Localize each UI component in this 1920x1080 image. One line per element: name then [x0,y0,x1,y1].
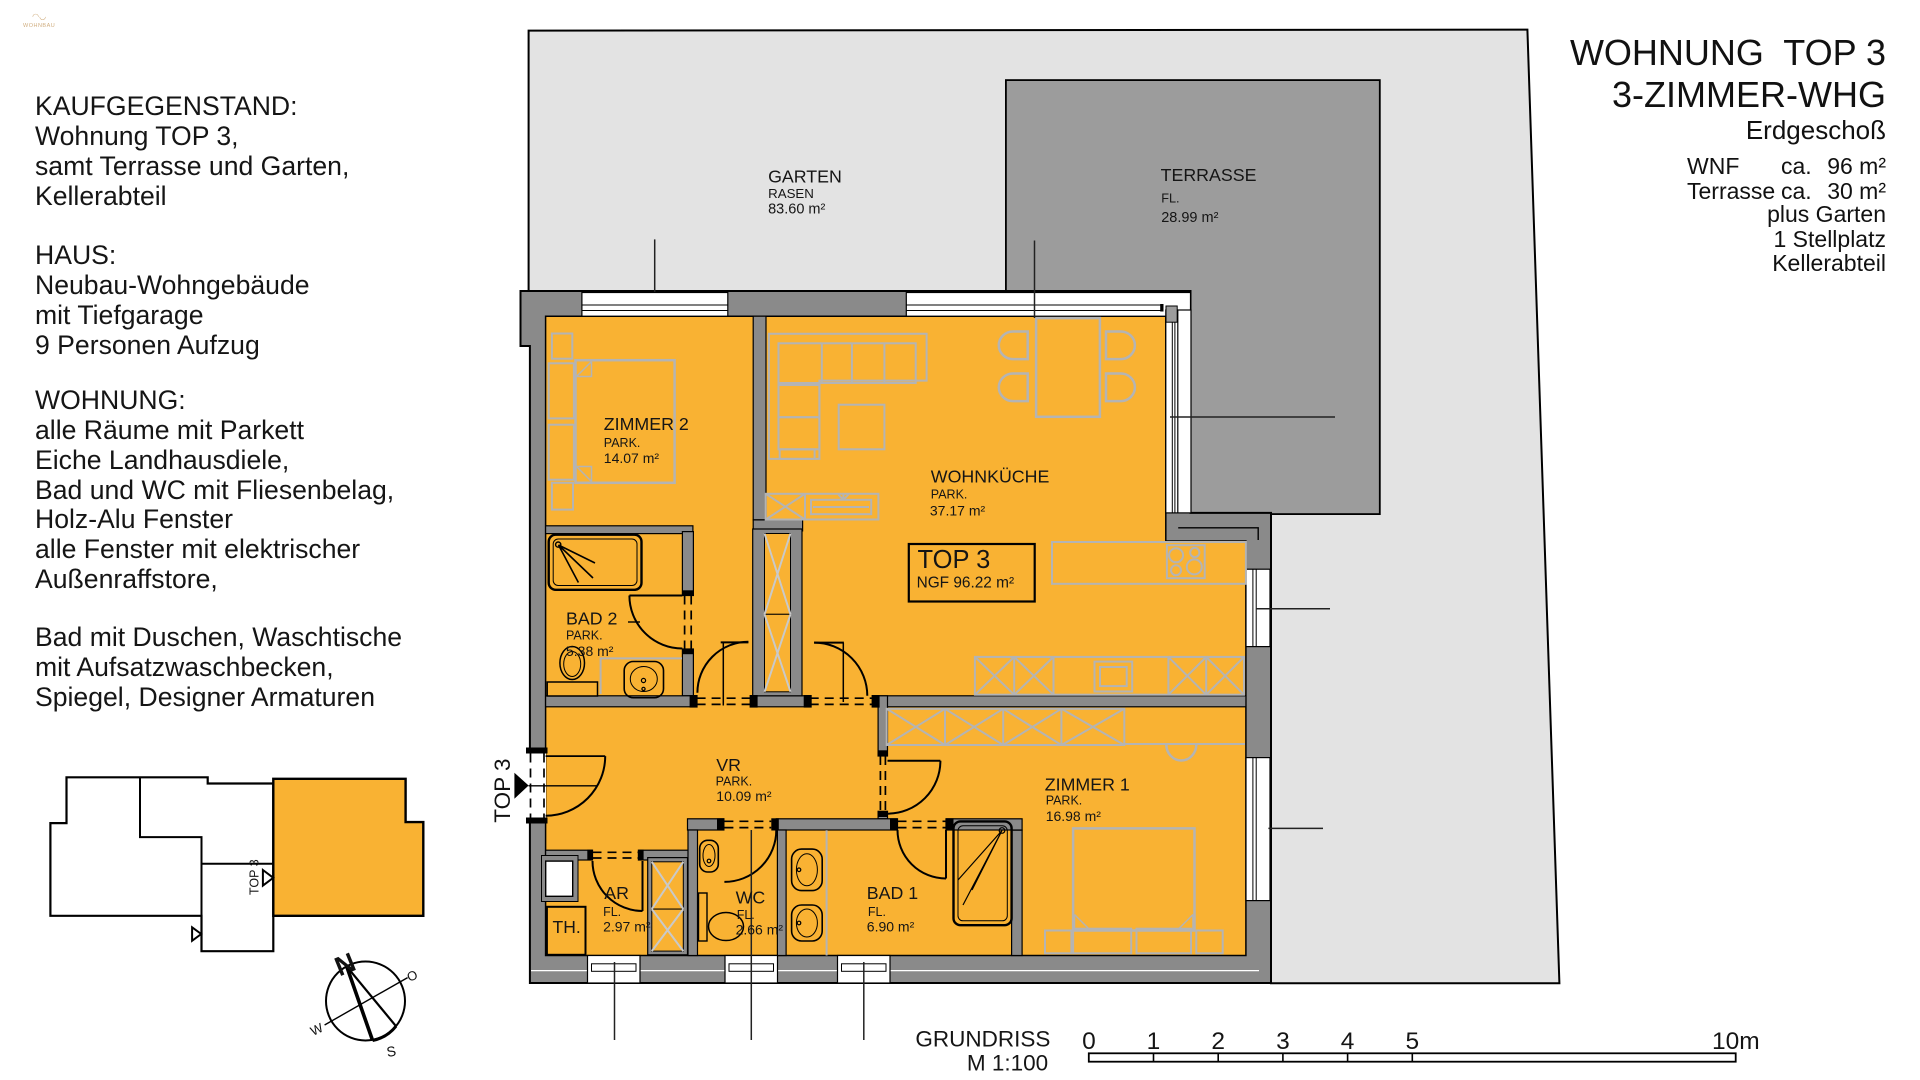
svg-text:GARTEN: GARTEN [768,167,842,187]
svg-text:WOHNKÜCHE: WOHNKÜCHE [931,467,1050,487]
svg-text:O: O [404,967,420,985]
svg-text:PARK.: PARK. [604,436,641,450]
svg-text:FL.: FL. [603,905,621,919]
svg-text:S: S [385,1043,397,1060]
svg-text:83.60 m²: 83.60 m² [768,201,825,217]
svg-text:TOP 3: TOP 3 [918,546,991,574]
svg-text:5: 5 [1405,1028,1419,1055]
svg-text:RASEN: RASEN [768,186,814,201]
svg-text:TOP 3: TOP 3 [490,758,515,822]
svg-text:6.90 m²: 6.90 m² [867,919,915,935]
svg-text:2: 2 [1211,1028,1225,1055]
svg-text:37.17 m²: 37.17 m² [930,503,986,519]
svg-text:3: 3 [1276,1028,1290,1055]
svg-text:FL.: FL. [868,905,886,919]
svg-text:4: 4 [1341,1028,1355,1055]
svg-text:14.07 m²: 14.07 m² [604,450,660,466]
svg-text:10.09 m²: 10.09 m² [716,788,772,804]
svg-text:5.38 m²: 5.38 m² [566,643,614,659]
svg-text:BAD 1: BAD 1 [867,883,919,903]
svg-text:0: 0 [1082,1028,1096,1055]
svg-text:W: W [308,1020,326,1039]
svg-text:PARK.: PARK. [716,774,753,788]
svg-text:PARK.: PARK. [931,488,968,502]
svg-text:TH.: TH. [553,917,581,937]
svg-text:ZIMMER 2: ZIMMER 2 [604,414,689,434]
svg-text:NGF 96.22 m²: NGF 96.22 m² [917,574,1015,591]
svg-text:2.66 m²: 2.66 m² [736,922,784,938]
svg-text:TERRASSE: TERRASSE [1161,165,1257,185]
svg-text:TOP 3: TOP 3 [248,859,262,895]
svg-text:ZIMMER 1: ZIMMER 1 [1045,774,1130,794]
svg-text:PARK.: PARK. [1046,794,1083,808]
svg-text:M 1:100: M 1:100 [967,1051,1048,1076]
svg-text:VR: VR [716,755,741,775]
svg-text:FL.: FL. [1161,192,1179,206]
svg-text:GRUNDRISS: GRUNDRISS [915,1027,1050,1052]
svg-text:AR: AR [604,883,629,903]
svg-text:WC: WC [736,888,766,908]
svg-text:16.98 m²: 16.98 m² [1046,808,1102,824]
svg-text:1: 1 [1147,1028,1161,1055]
svg-text:PARK.: PARK. [566,629,603,643]
svg-text:28.99 m²: 28.99 m² [1161,210,1218,226]
svg-text:10m: 10m [1712,1028,1760,1055]
svg-text:FL.: FL. [737,908,755,922]
svg-text:BAD 2: BAD 2 [566,609,617,629]
svg-text:2.97 m²: 2.97 m² [603,919,651,935]
